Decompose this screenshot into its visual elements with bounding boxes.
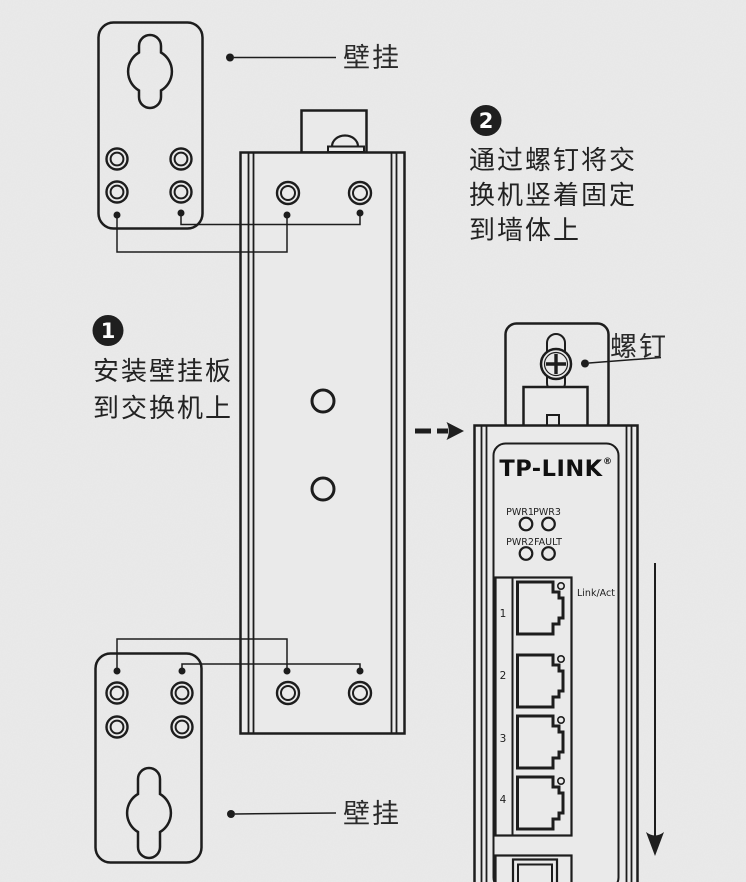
step-2-text: 到墙体上 xyxy=(469,216,581,246)
step-2-text: 通过螺钉将交 xyxy=(469,146,637,176)
instruction-diagram: 壁挂 壁挂 1 安装壁挂板 到交换机上 2 通过螺钉将交 换机竖着固定 到墙体上 xyxy=(0,0,746,882)
wall-mount-label: 壁挂 xyxy=(343,799,401,830)
link-act-label: Link/Act xyxy=(577,588,615,599)
step-2-number: 2 xyxy=(479,109,494,133)
registered-mark: ® xyxy=(603,457,612,467)
screw-label: 螺钉 xyxy=(610,332,668,363)
leader-line xyxy=(235,813,336,814)
step-1-number: 1 xyxy=(101,319,116,343)
wall-mount-label: 壁挂 xyxy=(343,43,401,74)
leader-dot xyxy=(226,54,234,62)
switch-rear-view xyxy=(241,111,405,734)
switch-body xyxy=(241,153,405,734)
port-number: 3 xyxy=(500,733,507,745)
step-1-text: 安装壁挂板 xyxy=(93,357,233,387)
port-number: 4 xyxy=(500,794,507,806)
port-number: 2 xyxy=(500,670,507,682)
step-1-text: 到交换机上 xyxy=(93,394,233,424)
port-number: 1 xyxy=(500,608,507,620)
led-label-pwr1: PWR1 xyxy=(506,507,534,518)
leader-dot xyxy=(227,810,235,818)
led-label-pwr3: PWR3 xyxy=(533,507,561,518)
phillips-screw-icon xyxy=(541,349,571,379)
step-2-text: 换机竖着固定 xyxy=(469,181,637,211)
leader-dot xyxy=(581,360,589,368)
led-label-pwr2: PWR2 xyxy=(506,537,534,548)
brand-logo: TP-LINK xyxy=(499,456,603,482)
